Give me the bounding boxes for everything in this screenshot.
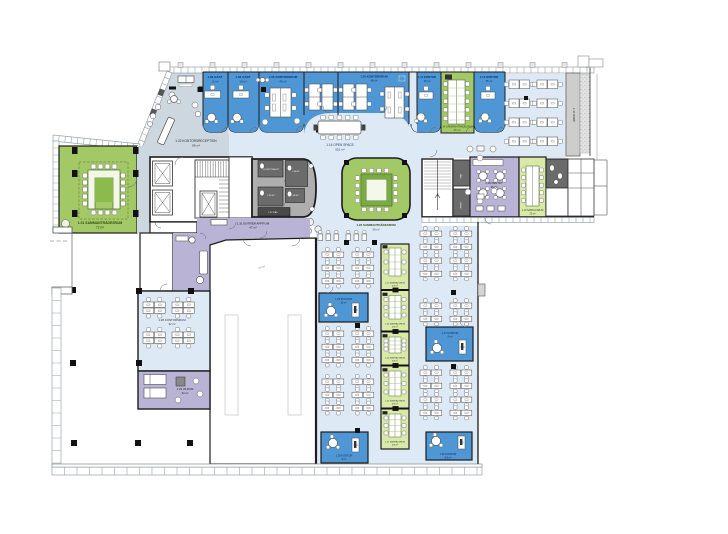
svg-text:1.37 STÄD: 1.37 STÄD bbox=[268, 211, 278, 214]
svg-text:9 m²: 9 m² bbox=[342, 458, 347, 461]
svg-text:1.25 SAMTALSRUM: 1.25 SAMTALSRUM bbox=[385, 357, 405, 360]
svg-text:15 m²: 15 m² bbox=[486, 79, 493, 83]
svg-text:1.05 KONTORSRUM: 1.05 KONTORSRUM bbox=[269, 75, 298, 79]
svg-text:1.36 WC: 1.36 WC bbox=[291, 195, 299, 197]
svg-text:1.27 KONTOR: 1.27 KONTOR bbox=[442, 331, 459, 335]
svg-text:48 m²: 48 m² bbox=[371, 79, 378, 83]
svg-text:20 m²: 20 m² bbox=[530, 213, 536, 216]
svg-text:72 m²: 72 m² bbox=[96, 226, 104, 230]
svg-text:4/8 m²: 4/8 m² bbox=[392, 360, 398, 363]
svg-text:20 m²: 20 m² bbox=[182, 391, 189, 395]
svg-text:86 m²: 86 m² bbox=[192, 144, 200, 148]
svg-text:4/8 m²: 4/8 m² bbox=[392, 403, 398, 406]
svg-text:FRD: FRD bbox=[461, 173, 463, 178]
svg-text:1.33 WC/TOALETT: 1.33 WC/TOALETT bbox=[263, 168, 280, 171]
svg-text:8.5 m²: 8.5 m² bbox=[445, 456, 452, 459]
svg-text:45 m²: 45 m² bbox=[279, 80, 286, 84]
svg-text:4/8 m²: 4/8 m² bbox=[392, 285, 398, 288]
svg-text:1.24 SAMTALSRUM: 1.24 SAMTALSRUM bbox=[385, 323, 405, 326]
svg-text:1.13 KONTOR: 1.13 KONTOR bbox=[480, 75, 498, 79]
svg-text:32 m²: 32 m² bbox=[169, 322, 176, 326]
svg-text:12 m²: 12 m² bbox=[211, 80, 218, 84]
svg-text:47 m²: 47 m² bbox=[249, 226, 256, 230]
svg-text:1.26 SAMTALSRUM: 1.26 SAMTALSRUM bbox=[385, 400, 405, 403]
svg-text:39 m²: 39 m² bbox=[372, 228, 379, 232]
svg-text:1.35 WC: 1.35 WC bbox=[267, 195, 275, 197]
svg-text:4/8 m²: 4/8 m² bbox=[392, 444, 398, 447]
svg-text:1.40 RAMP: 1.40 RAMP bbox=[572, 108, 576, 122]
svg-text:15 m²: 15 m² bbox=[424, 79, 431, 83]
svg-text:1.01 SAMMANTRÄDESRUM: 1.01 SAMMANTRÄDESRUM bbox=[78, 221, 123, 225]
svg-text:1.02 KONTORSRECEPTION: 1.02 KONTORSRECEPTION bbox=[175, 139, 217, 143]
svg-text:1.34 WC: 1.34 WC bbox=[292, 171, 300, 173]
svg-text:1.27 SAMTALSRUM: 1.27 SAMTALSRUM bbox=[385, 441, 405, 444]
svg-text:10 m²: 10 m² bbox=[340, 302, 346, 305]
svg-text:9 m²: 9 m² bbox=[448, 336, 453, 339]
svg-text:1.04 GÄST: 1.04 GÄST bbox=[235, 75, 250, 79]
svg-text:4/8 m²: 4/8 m² bbox=[392, 326, 398, 329]
svg-text:1.19 SAMTALSRUM: 1.19 SAMTALSRUM bbox=[522, 209, 544, 212]
svg-text:1.28 KONTORSRUM: 1.28 KONTORSRUM bbox=[158, 318, 186, 322]
svg-text:1.22 SAMMANTRÄDESRUM: 1.22 SAMMANTRÄDESRUM bbox=[356, 223, 396, 227]
svg-text:552 m²: 552 m² bbox=[335, 148, 344, 152]
svg-text:1.23 SAMTALSRUM: 1.23 SAMTALSRUM bbox=[385, 282, 405, 285]
svg-text:14 m²: 14 m² bbox=[239, 80, 246, 84]
svg-text:1.03 GÄST: 1.03 GÄST bbox=[207, 75, 222, 79]
svg-text:1.16 OPEN SPACE: 1.16 OPEN SPACE bbox=[326, 143, 354, 147]
svg-text:1.25 KONTOR: 1.25 KONTOR bbox=[335, 297, 352, 301]
svg-text:1.11 KONTOR: 1.11 KONTOR bbox=[418, 75, 436, 79]
svg-text:1.10 KONTORSRUM: 1.10 KONTORSRUM bbox=[360, 75, 388, 79]
svg-text:1.18 PENTRY: 1.18 PENTRY bbox=[485, 181, 503, 185]
svg-text:1.26 KONTOR: 1.26 KONTOR bbox=[336, 454, 353, 458]
svg-text:PRINT: PRINT bbox=[461, 201, 463, 208]
svg-text:26 m²: 26 m² bbox=[454, 128, 461, 132]
svg-text:1.29 VILRUM: 1.29 VILRUM bbox=[177, 387, 194, 391]
